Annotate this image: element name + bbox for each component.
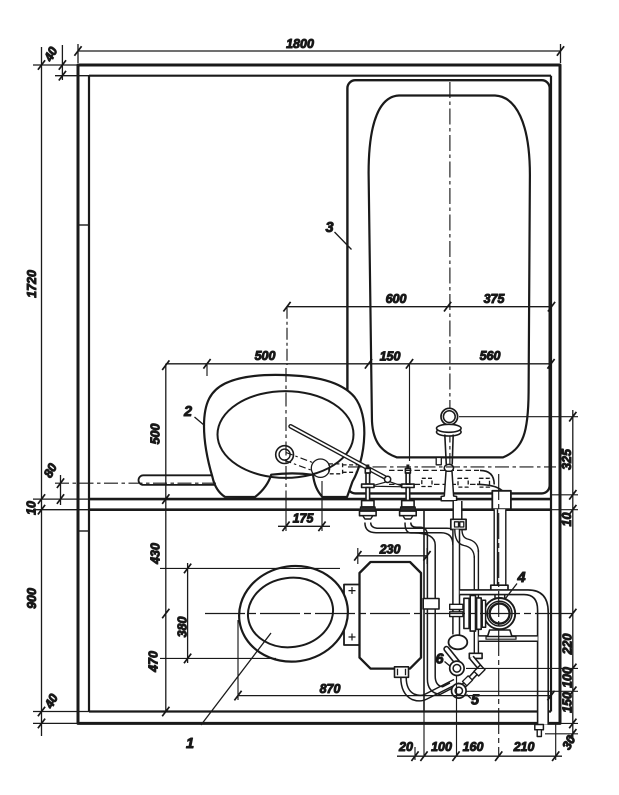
- svg-text:430: 430: [149, 543, 163, 565]
- svg-text:80: 80: [41, 461, 60, 480]
- svg-text:100: 100: [561, 667, 575, 688]
- svg-text:100: 100: [431, 740, 452, 754]
- svg-text:1800: 1800: [286, 37, 314, 51]
- svg-text:30: 30: [560, 733, 579, 752]
- svg-text:1: 1: [186, 736, 194, 752]
- svg-text:10: 10: [560, 513, 574, 527]
- svg-text:20: 20: [398, 740, 413, 754]
- svg-text:10: 10: [25, 501, 39, 515]
- svg-text:5: 5: [471, 693, 480, 709]
- svg-text:2: 2: [183, 404, 192, 420]
- svg-text:470: 470: [147, 651, 161, 673]
- svg-text:230: 230: [379, 543, 401, 557]
- svg-text:150: 150: [380, 350, 401, 364]
- svg-text:380: 380: [176, 617, 190, 638]
- svg-text:210: 210: [513, 740, 535, 754]
- svg-text:500: 500: [255, 349, 276, 363]
- svg-text:4: 4: [516, 570, 525, 586]
- svg-text:375: 375: [484, 292, 506, 306]
- svg-text:175: 175: [293, 512, 315, 526]
- svg-text:870: 870: [320, 682, 341, 696]
- svg-text:900: 900: [25, 588, 39, 609]
- svg-text:220: 220: [561, 634, 575, 656]
- svg-text:160: 160: [463, 740, 484, 754]
- svg-text:560: 560: [480, 349, 501, 363]
- svg-text:325: 325: [560, 448, 574, 470]
- svg-text:1720: 1720: [25, 270, 39, 298]
- svg-text:500: 500: [149, 424, 163, 445]
- svg-text:600: 600: [386, 292, 407, 306]
- svg-text:3: 3: [325, 220, 333, 236]
- svg-text:6: 6: [435, 652, 444, 668]
- svg-text:150: 150: [561, 692, 575, 713]
